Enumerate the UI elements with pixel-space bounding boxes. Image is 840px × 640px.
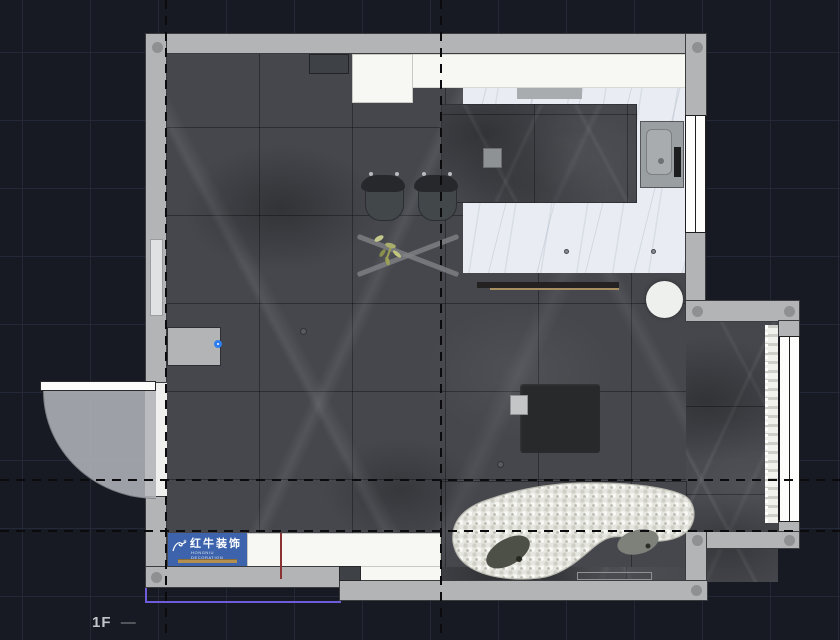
- window-right-bottom[interactable]: [779, 336, 800, 522]
- guide-axis-vertical-2[interactable]: [440, 0, 442, 640]
- column-marker: [784, 306, 795, 317]
- wall-protrusion[interactable]: [167, 327, 221, 366]
- window-mullion: [789, 337, 790, 521]
- kitchen-counter[interactable]: [412, 54, 686, 88]
- side-block[interactable]: [510, 395, 528, 415]
- floor-label-text: 1F: [92, 614, 112, 631]
- column-marker: [152, 42, 163, 53]
- curved-sofa[interactable]: [445, 480, 700, 584]
- guide-axis-vertical-1[interactable]: [165, 0, 167, 640]
- dining-chair-2[interactable]: [414, 172, 460, 222]
- reference-line-red: [280, 533, 282, 579]
- wall-bottom-left[interactable]: [145, 566, 361, 588]
- window-mullion: [695, 116, 696, 232]
- brand-watermark[interactable]: 红牛装饰 HONGNIU DECORATION: [168, 533, 247, 567]
- column-marker: [691, 585, 702, 596]
- point-marker-blue[interactable]: [214, 340, 222, 348]
- floorplan-canvas: 红牛装饰 HONGNIU DECORATION 1F —: [0, 0, 840, 640]
- bottom-cabinet-row[interactable]: [247, 533, 441, 567]
- door-swing-arc: [43, 391, 156, 499]
- wall-outer-right-top[interactable]: [778, 320, 800, 337]
- floor-level-label[interactable]: 1F —: [92, 614, 137, 631]
- guide-axis-horizontal-2[interactable]: [0, 530, 840, 532]
- floor-label-dash: —: [121, 614, 137, 631]
- column-marker: [784, 535, 795, 546]
- pillow-button: [516, 556, 522, 562]
- hob[interactable]: [483, 148, 502, 168]
- refrigerator[interactable]: [352, 54, 413, 103]
- door-leaf[interactable]: [40, 381, 156, 391]
- wall-right-mid[interactable]: [685, 231, 706, 302]
- chair-back: [414, 175, 458, 192]
- floor-spot: [300, 328, 307, 335]
- watermark-gold-bar: [178, 559, 237, 563]
- faucet-dot: [658, 158, 664, 164]
- curtain[interactable]: [765, 325, 778, 523]
- coffee-table[interactable]: [520, 384, 600, 453]
- selection-line-horizontal: [145, 601, 341, 603]
- bar-shelf-trim: [490, 288, 619, 290]
- floor-spot: [651, 249, 656, 254]
- crane-logo-icon: [171, 538, 188, 554]
- column-marker: [692, 306, 703, 317]
- range-hood[interactable]: [517, 88, 582, 99]
- column-marker: [692, 42, 703, 53]
- dining-chair-1[interactable]: [361, 172, 407, 222]
- sink-drainer: [674, 147, 681, 177]
- wall-top[interactable]: [145, 33, 707, 54]
- chair-back: [361, 175, 405, 192]
- wall-left-upper[interactable]: [145, 33, 167, 383]
- wall-niche[interactable]: [150, 239, 163, 316]
- sink-basin: [646, 129, 672, 175]
- column-marker: [151, 572, 162, 583]
- floor-spot: [497, 461, 504, 468]
- guide-axis-horizontal-1[interactable]: [0, 479, 840, 481]
- wardrobe[interactable]: [309, 54, 349, 74]
- pillow-button: [646, 544, 651, 549]
- sink-unit[interactable]: [640, 121, 684, 188]
- wall-step-block[interactable]: [339, 566, 361, 581]
- window-right-top[interactable]: [685, 115, 706, 233]
- floor-spot: [564, 249, 569, 254]
- round-table[interactable]: [646, 281, 683, 318]
- kitchen-island[interactable]: [441, 104, 637, 203]
- watermark-title: 红牛装饰: [190, 538, 242, 550]
